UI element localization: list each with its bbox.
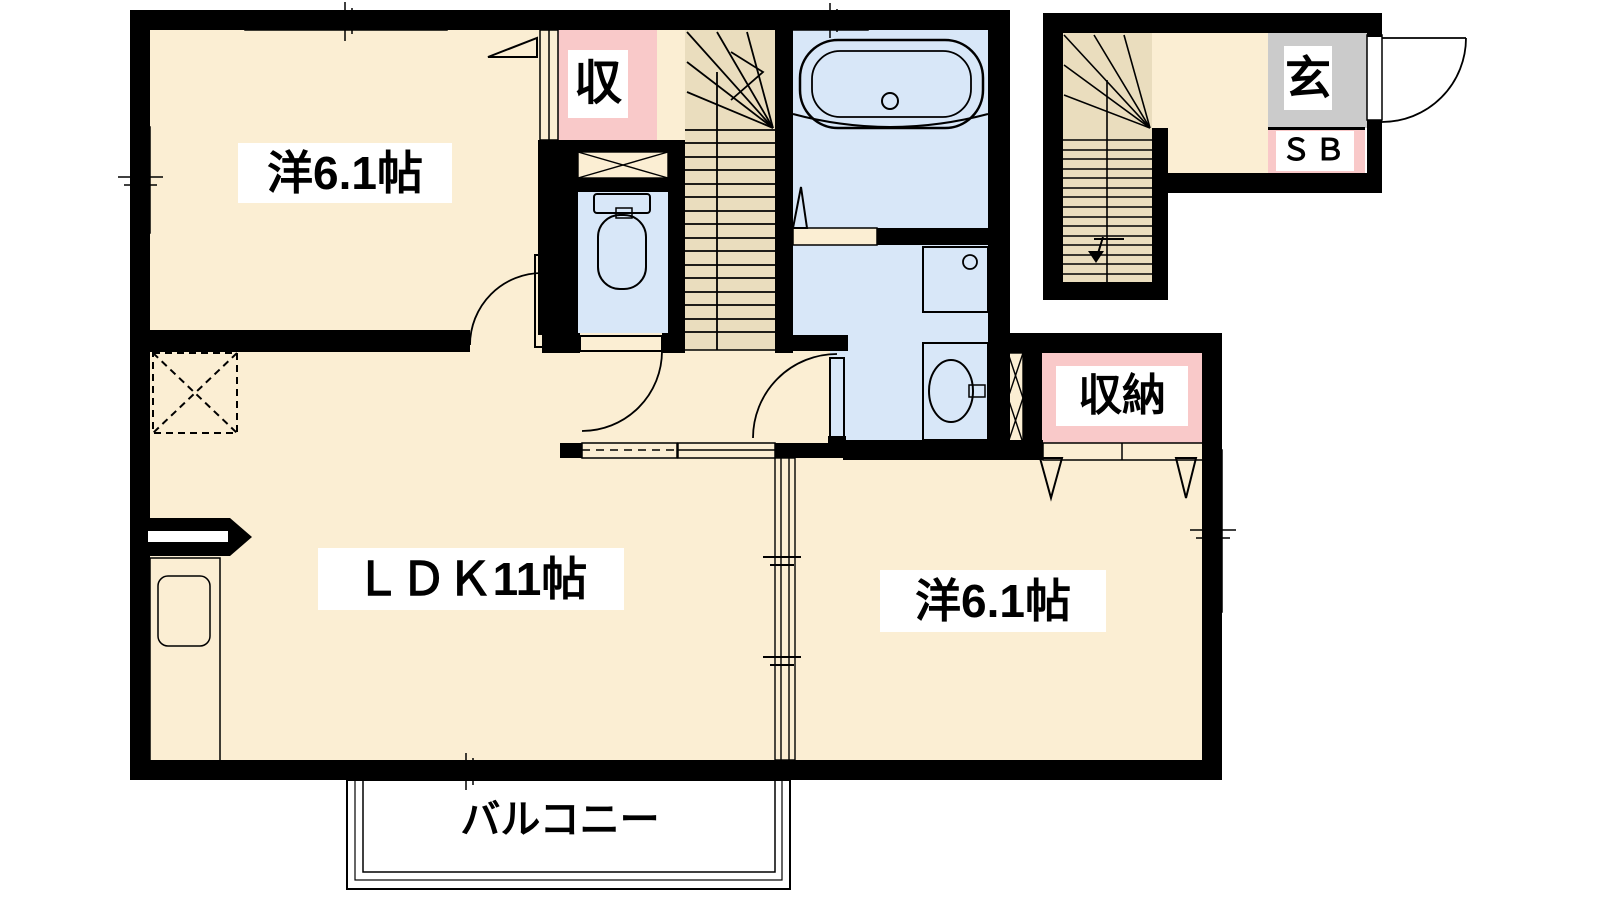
entry-door bbox=[1367, 35, 1466, 122]
ldk-label: ＬＤＫ11帖 bbox=[318, 548, 624, 610]
floorplan-drawing bbox=[0, 0, 1600, 900]
closet-shu-label: 収 bbox=[568, 50, 628, 118]
storage-shuno-label: 収納 bbox=[1056, 366, 1188, 426]
entrance-hall-floor bbox=[1152, 33, 1268, 173]
balcony-label: バルコニー bbox=[424, 792, 696, 848]
entrance-section bbox=[1043, 13, 1466, 300]
floorplan: 洋6.1帖 ＬＤＫ11帖 洋6.1帖 収 収納 玄 ＳＢ バルコニー const… bbox=[0, 0, 1600, 900]
main-staircase bbox=[685, 30, 775, 350]
room1-label: 洋6.1帖 bbox=[238, 143, 452, 203]
entrance-label: 玄 bbox=[1284, 46, 1332, 110]
shoebox-label: ＳＢ bbox=[1276, 131, 1354, 171]
kitchen-wall-stub bbox=[148, 518, 252, 556]
bedroom2-label: 洋6.1帖 bbox=[880, 570, 1106, 632]
washroom-entry-pocket bbox=[793, 351, 830, 443]
